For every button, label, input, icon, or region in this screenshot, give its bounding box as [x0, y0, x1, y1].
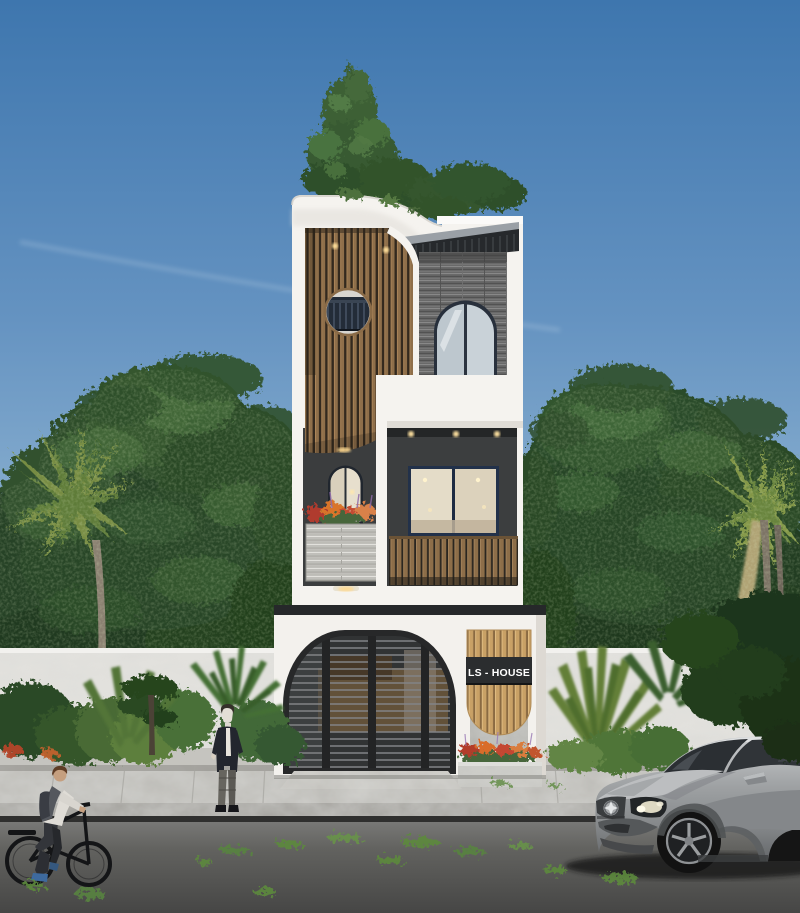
- svg-text:LS - HOUSE: LS - HOUSE: [468, 667, 530, 679]
